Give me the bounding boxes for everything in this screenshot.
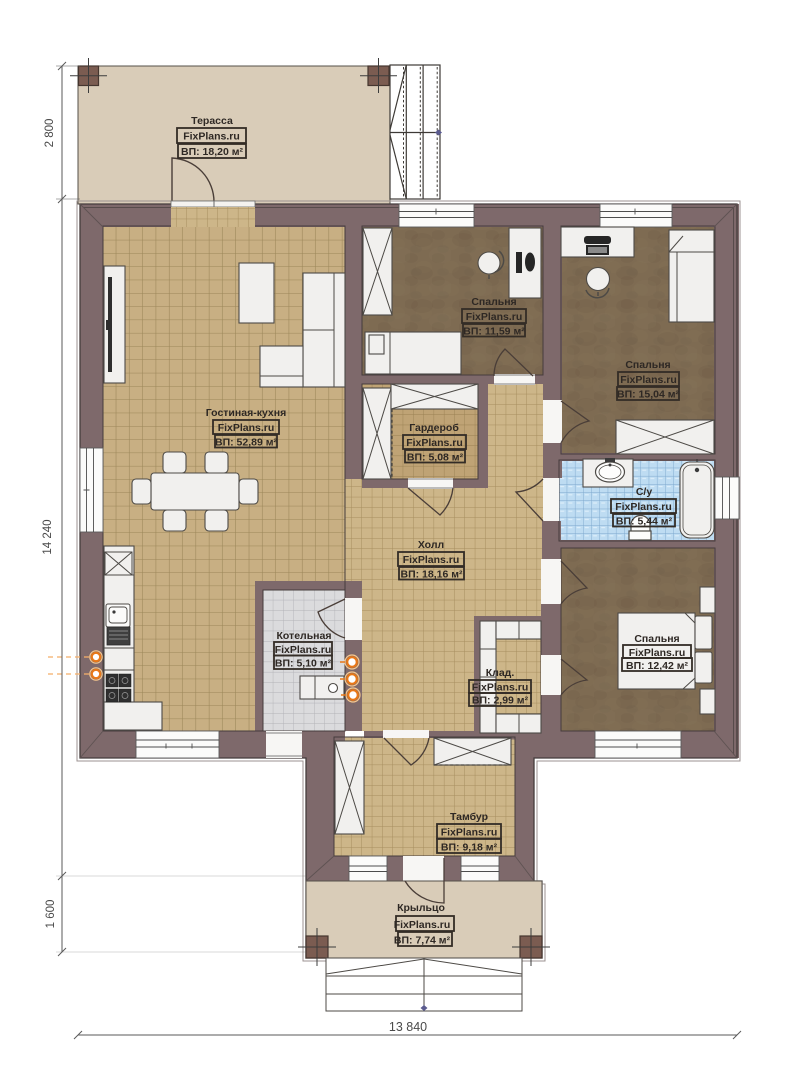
svg-text:Крыльцо: Крыльцо: [397, 902, 445, 914]
svg-text:2 800: 2 800: [44, 119, 56, 148]
svg-text:ВП: 18,20 м²: ВП: 18,20 м²: [181, 146, 244, 158]
svg-text:FixPlans.ru: FixPlans.ru: [472, 682, 529, 694]
svg-text:FixPlans.ru: FixPlans.ru: [620, 374, 677, 386]
svg-text:С/у: С/у: [636, 486, 653, 498]
svg-text:14 240: 14 240: [42, 519, 54, 554]
svg-text:Гостиная-кухня: Гостиная-кухня: [206, 407, 286, 419]
svg-text:ВП: 12,42 м²: ВП: 12,42 м²: [626, 660, 689, 672]
svg-text:1 600: 1 600: [45, 900, 57, 929]
svg-text:ВП: 7,74 м²: ВП: 7,74 м²: [394, 935, 451, 947]
svg-text:Спальня: Спальня: [625, 359, 670, 371]
svg-text:Спальня: Спальня: [471, 296, 516, 308]
svg-text:Спальня: Спальня: [634, 633, 679, 645]
svg-text:13 840: 13 840: [389, 1020, 427, 1034]
svg-text:FixPlans.ru: FixPlans.ru: [275, 644, 332, 656]
svg-text:ВП: 15,04 м²: ВП: 15,04 м²: [617, 389, 680, 401]
svg-text:ВП: 52,89 м²: ВП: 52,89 м²: [215, 437, 278, 449]
svg-text:FixPlans.ru: FixPlans.ru: [406, 437, 463, 449]
svg-text:Клад.: Клад.: [486, 667, 515, 679]
svg-text:Терасса: Терасса: [191, 115, 233, 127]
svg-text:FixPlans.ru: FixPlans.ru: [394, 919, 451, 931]
svg-text:FixPlans.ru: FixPlans.ru: [183, 131, 240, 143]
svg-text:ВП: 5,10 м²: ВП: 5,10 м²: [275, 658, 332, 670]
svg-text:Тамбур: Тамбур: [450, 811, 488, 823]
svg-text:ВП: 5,44 м²: ВП: 5,44 м²: [616, 516, 673, 528]
svg-text:ВП: 18,16 м²: ВП: 18,16 м²: [400, 569, 463, 581]
svg-text:ВП: 9,18 м²: ВП: 9,18 м²: [441, 842, 498, 854]
svg-text:Котельная: Котельная: [277, 630, 332, 642]
svg-text:FixPlans.ru: FixPlans.ru: [629, 647, 686, 659]
svg-text:FixPlans.ru: FixPlans.ru: [218, 422, 275, 434]
svg-text:ВП: 2,99 м²: ВП: 2,99 м²: [472, 695, 529, 707]
svg-text:FixPlans.ru: FixPlans.ru: [403, 554, 460, 566]
svg-text:ВП: 11,59 м²: ВП: 11,59 м²: [463, 326, 525, 338]
svg-text:FixPlans.ru: FixPlans.ru: [466, 311, 523, 323]
svg-text:Гардероб: Гардероб: [409, 422, 459, 434]
svg-text:ВП: 5,08 м²: ВП: 5,08 м²: [407, 452, 464, 464]
svg-text:Холл: Холл: [418, 539, 444, 551]
svg-text:FixPlans.ru: FixPlans.ru: [441, 827, 498, 839]
svg-text:FixPlans.ru: FixPlans.ru: [615, 501, 672, 513]
